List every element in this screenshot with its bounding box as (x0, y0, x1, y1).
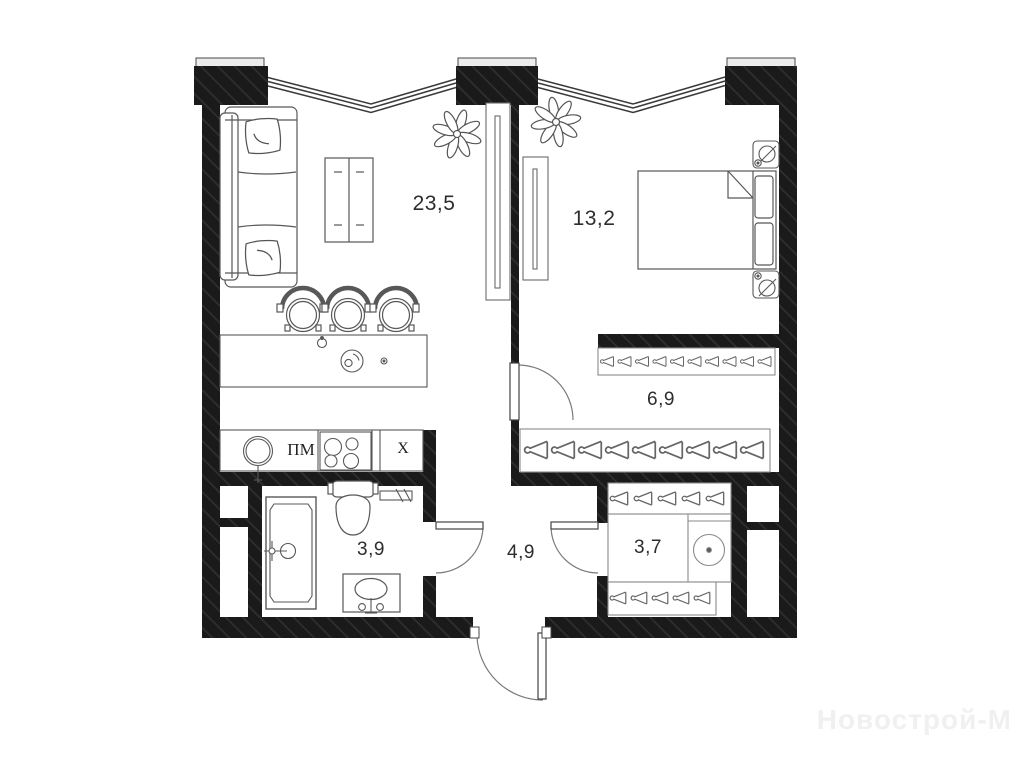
wall-pillar-right (725, 66, 797, 105)
sofa (220, 105, 297, 289)
wall-partition-upper (511, 104, 519, 363)
room-area-bedroom: 13,2 (573, 207, 616, 231)
plate-icon (341, 350, 363, 372)
nightstand (753, 141, 779, 168)
floor-plan-drawing (0, 0, 1024, 768)
bar-stool (370, 288, 419, 332)
doors (436, 363, 598, 700)
coffee-table (325, 158, 373, 242)
hanger-rail-wardrobe-bottom (520, 429, 770, 472)
bar-stool (322, 288, 371, 331)
wall-bathroom-top (216, 472, 436, 486)
fridge-label: X (397, 440, 409, 458)
wall-bottom-left (202, 617, 473, 638)
bed-pillow (755, 223, 773, 265)
hanger-rail-wardrobe-top (598, 348, 775, 375)
room-area-living-kitchen: 23,5 (413, 192, 456, 216)
hanger-rail-storage-bottom (608, 582, 716, 615)
bathroom-sink (343, 574, 400, 613)
dishwasher-label: ПМ (287, 440, 314, 460)
room-area-hallway: 4,9 (507, 542, 535, 564)
wall-pillar-middle (456, 66, 538, 105)
wall-pillar-left (194, 66, 268, 105)
toilet (328, 481, 378, 535)
door-wardrobe (510, 363, 573, 420)
shelf-unit-living (486, 103, 510, 300)
wardrobe-bedroom (523, 157, 548, 280)
bar-counter (220, 335, 427, 387)
washing-machine-icon (688, 514, 731, 582)
wall-shaft-divider-right (747, 522, 779, 530)
plant-icon (425, 102, 488, 165)
wall-left (202, 104, 220, 638)
wall-bathroom-left (248, 486, 262, 617)
storage-room (608, 483, 731, 615)
floor-plan-page: 23,5 13,2 6,9 3,9 4,9 3,7 ПМ X Новострой… (0, 0, 1024, 768)
bed (638, 171, 776, 269)
door-entrance (470, 627, 551, 700)
wall-storage-right (731, 486, 747, 617)
room-area-storage: 3,7 (634, 537, 662, 559)
room-area-bathroom: 3,9 (357, 539, 385, 561)
bar-stools (277, 288, 419, 332)
wall-storage-left-lower (597, 576, 608, 617)
window-bay-left (266, 77, 456, 113)
bathtub (264, 497, 316, 609)
wall-shaft-divider-left (214, 518, 248, 527)
door-bathroom (436, 522, 483, 573)
wall-bathroom-right-lower (423, 576, 436, 617)
watermark: Новострой-М (817, 704, 1012, 736)
door-storage (551, 522, 598, 573)
nightstand (753, 271, 779, 298)
room-area-wardrobe: 6,9 (647, 389, 675, 411)
wall-bottom-right (545, 617, 797, 638)
towel-rail (380, 489, 412, 502)
hanger-rail-storage-top (608, 483, 731, 514)
bar-stool (277, 288, 326, 332)
wall-partition-lower (511, 420, 519, 478)
wall-storage-left-upper (597, 486, 608, 523)
stove-icon (320, 432, 371, 470)
wall-right (779, 104, 797, 638)
bed-pillow (755, 176, 773, 218)
lamp-icon (759, 146, 775, 162)
wall-bedroom-bottom (598, 334, 779, 348)
